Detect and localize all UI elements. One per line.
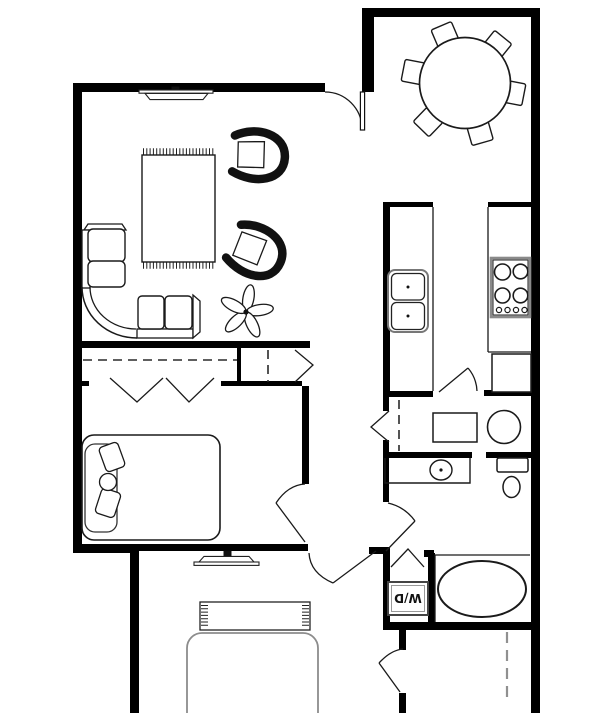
floor-plan: W/D [0, 0, 612, 713]
bedroom1-door [276, 484, 305, 542]
door-swing-arc [468, 368, 477, 391]
wall-segment [362, 8, 374, 92]
wall-segment [383, 202, 433, 207]
bathroom [385, 458, 528, 498]
wall-segment [237, 348, 241, 383]
bifold-door-icon [295, 350, 313, 382]
vanity-sink [385, 458, 470, 483]
door-leaf [333, 551, 376, 583]
bifold-door-icon [166, 378, 214, 402]
wall-segment [139, 544, 308, 551]
dining-table [420, 38, 511, 129]
bifold-door-icon [371, 411, 389, 442]
refrigerator [492, 354, 531, 392]
wall-segment [302, 386, 309, 484]
door-leaf [439, 368, 468, 392]
round-pillow [100, 474, 117, 491]
plant-icon [219, 284, 274, 339]
bedroom-1 [82, 435, 220, 540]
barrel-chair [223, 219, 291, 284]
area-rug [142, 152, 215, 266]
tub-area [435, 555, 530, 622]
fringed-rug [200, 602, 310, 630]
kitchen-sink [388, 270, 428, 332]
living-room [82, 87, 290, 340]
wall-segment [130, 553, 139, 713]
utility-nook [433, 411, 521, 444]
wall-segment [369, 547, 383, 554]
wall-segment [362, 8, 540, 17]
wall-segment [531, 8, 540, 713]
door-leaf [386, 521, 415, 551]
washer-box [433, 413, 477, 442]
wall-segment [383, 397, 389, 411]
barrel-chair [231, 129, 288, 182]
wall-segment [221, 381, 302, 386]
wall-segment [73, 83, 82, 553]
wall-segment [488, 202, 531, 207]
wall-segment [73, 544, 139, 553]
wall-segment [399, 693, 406, 713]
laundry-closet: W/D [388, 582, 428, 615]
washer-dryer-label: W/D [394, 591, 422, 605]
door-leaf [379, 663, 400, 692]
round-appliance [488, 411, 521, 444]
ceiling-light-icon [194, 551, 259, 566]
door-leaf [276, 503, 305, 542]
door-swing-arc [325, 92, 362, 129]
bedroom2-closet-door [379, 649, 403, 692]
wall-segment [383, 452, 472, 458]
wall-segment [383, 458, 389, 502]
toilet-icon [497, 458, 528, 498]
wall-segment [383, 391, 433, 397]
wall-segment [428, 553, 435, 628]
door-swing-arc [388, 503, 415, 521]
bifold-door-icon [110, 378, 163, 402]
door-leaf [360, 92, 364, 130]
entry-door [325, 92, 365, 130]
door-swing-arc [309, 553, 333, 583]
bed [187, 633, 318, 713]
door-swing-arc [379, 649, 403, 663]
bifold-door-icon [391, 549, 424, 567]
dining-area [401, 21, 526, 145]
wall-segment [73, 341, 310, 348]
bathroom-door [386, 503, 415, 551]
wall-segment [486, 452, 531, 458]
kitchen-door [439, 368, 477, 392]
wall-segment [383, 622, 540, 630]
wall-segment [399, 628, 406, 650]
bathtub [438, 561, 526, 617]
bed [82, 435, 220, 540]
wall-segment [82, 381, 89, 386]
kitchen [388, 207, 531, 392]
stove-icon [491, 258, 530, 317]
door-swing-arc [276, 484, 305, 503]
bedroom2-door [309, 551, 376, 583]
bedroom-2 [187, 551, 318, 713]
